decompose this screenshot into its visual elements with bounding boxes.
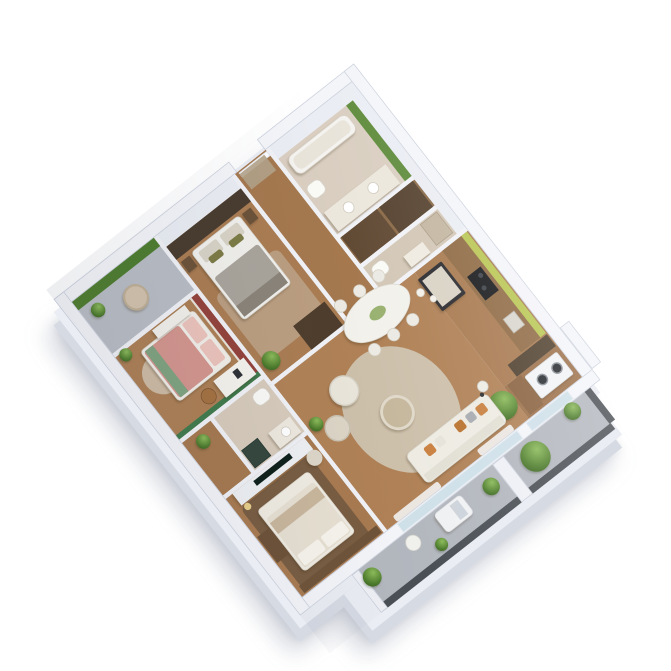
render-light-overlay (46, 47, 638, 653)
floorplan-3d-render (0, 0, 671, 671)
